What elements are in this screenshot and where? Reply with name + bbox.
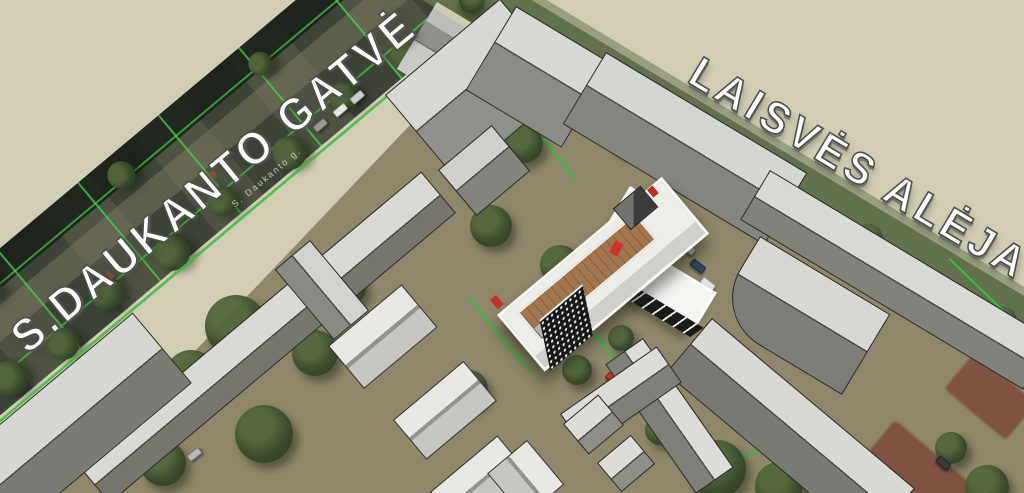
site-model-canvas: 10 13 11 11 S. Daukanto g.: [0, 0, 1024, 493]
tree: [102, 155, 141, 194]
tree: [235, 405, 293, 463]
tree: [562, 355, 592, 385]
